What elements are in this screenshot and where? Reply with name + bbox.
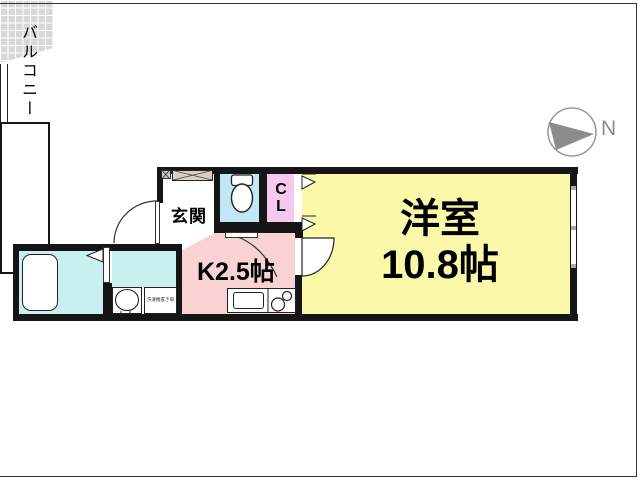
main-room-label: 洋室 10.8帖: [325, 196, 555, 288]
balcony: バルコニー: [0, 122, 50, 274]
compass-north-label: N: [601, 117, 616, 141]
closet-label-line1: C: [268, 181, 294, 198]
genkan-label: 玄関: [164, 202, 214, 227]
main-room-label-line2: 10.8帖: [325, 242, 555, 288]
main-room-label-line1: 洋室: [325, 196, 555, 242]
washing-machine-label: 洗濯機置き場: [145, 297, 176, 303]
balcony-label: バルコニー: [15, 24, 39, 119]
floorplan-canvas: バルコニー 玄関 C L K2.5帖: [0, 0, 640, 480]
closet-label-line2: L: [268, 198, 294, 215]
closet-label: C L: [268, 181, 294, 215]
kitchen-label: K2.5帖: [197, 252, 275, 288]
